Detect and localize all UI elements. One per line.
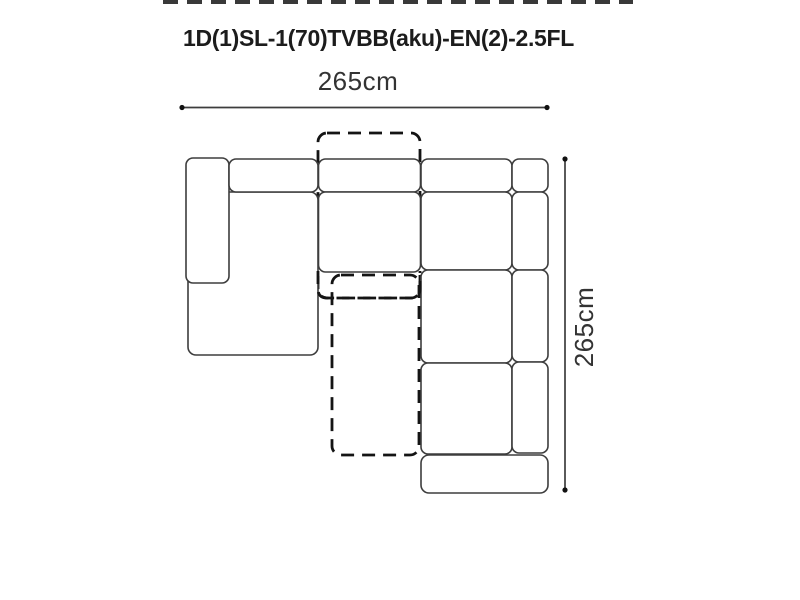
sofa-top-view-schematic (0, 0, 800, 600)
module-right-seat-1 (421, 192, 512, 270)
module-right-seat-2 (421, 270, 512, 363)
width-dimension-line (179, 105, 549, 110)
sofa-dimension-diagram-page: 1D(1)SL-1(70)TVBB(aku)-EN(2)-2.5FL 265cm… (0, 0, 800, 600)
module-middle-backrest (319, 159, 421, 192)
module-right-armrest-2 (512, 270, 548, 362)
module-right-seat-3 (421, 363, 512, 454)
module-corner-seat (319, 192, 421, 272)
height-dimension-start-dot (562, 156, 567, 161)
module-right-corner-block (512, 159, 548, 192)
module-right-backrest (421, 159, 512, 192)
module-left-backrest (229, 159, 318, 192)
module-left-armrest (186, 158, 229, 283)
height-dimension-line (562, 156, 567, 492)
dashed-pullout-extension-overlay (332, 275, 419, 455)
sofa-solid-modules (186, 158, 548, 493)
module-right-armrest-3 (512, 362, 548, 453)
height-dimension-end-dot (562, 487, 567, 492)
module-right-armrest-1 (512, 192, 548, 270)
module-bottom-armrest (421, 455, 548, 493)
width-dimension-start-dot (179, 105, 184, 110)
width-dimension-end-dot (544, 105, 549, 110)
